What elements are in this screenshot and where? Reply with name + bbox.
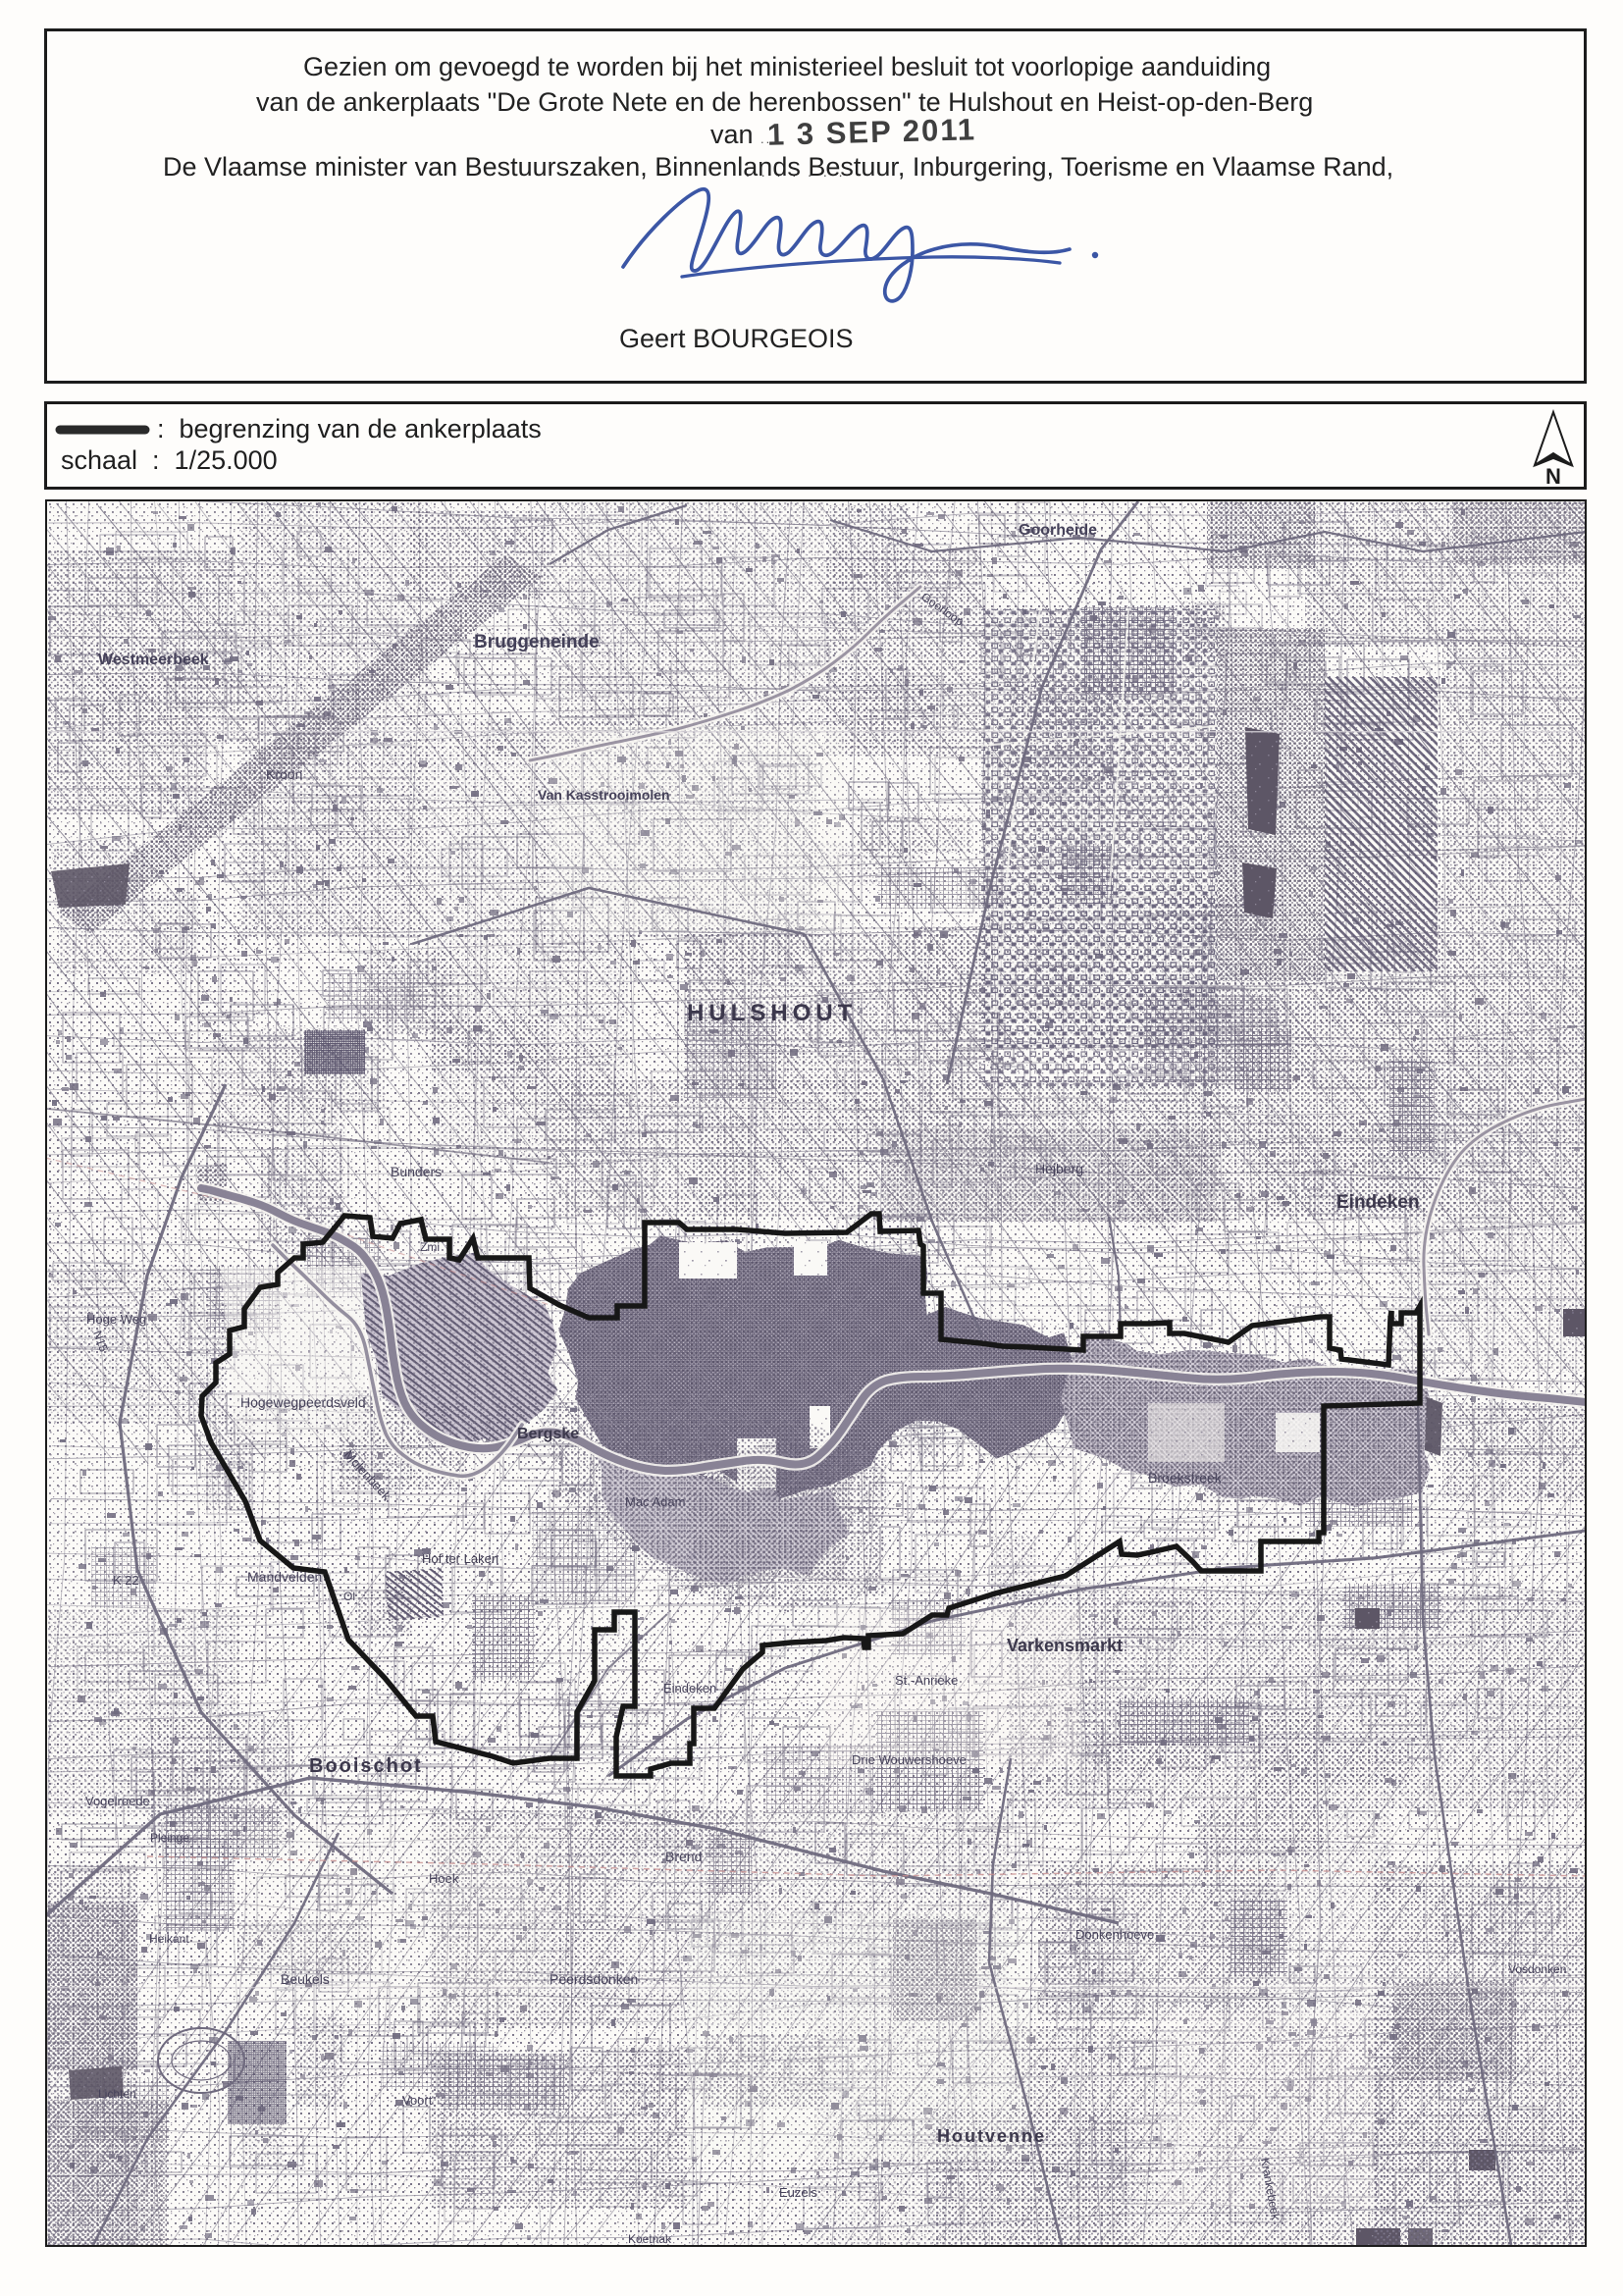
svg-text:Heikant: Heikant — [149, 1932, 189, 1946]
svg-text:Eindeken: Eindeken — [663, 1681, 716, 1696]
svg-text:K 22: K 22 — [113, 1573, 139, 1588]
svg-text:Hoge Weg: Hoge Weg — [86, 1312, 146, 1327]
svg-text:Goorheide: Goorheide — [1019, 522, 1097, 539]
svg-text:Hogewegpeerdsveld: Hogewegpeerdsveld — [240, 1394, 366, 1410]
svg-text:Beukels: Beukels — [281, 1971, 330, 1987]
svg-text:Kroon: Kroon — [266, 766, 302, 782]
svg-text:Voort: Voort — [402, 2093, 433, 2108]
svg-text:Euzels: Euzels — [779, 2185, 818, 2200]
svg-text:Mandvelden: Mandvelden — [247, 1569, 322, 1585]
svg-text:Drie Wouwershoeve: Drie Wouwershoeve — [852, 1752, 967, 1767]
svg-text:St.-Anrieke: St.-Anrieke — [895, 1673, 958, 1688]
svg-text:Varkensmarkt: Varkensmarkt — [1007, 1636, 1123, 1655]
svg-text:Broekstreek: Broekstreek — [1148, 1470, 1223, 1486]
svg-text:Lichten: Lichten — [98, 2087, 136, 2101]
svg-text:Bruggeneinde: Bruggeneinde — [474, 632, 600, 652]
svg-text:Brend: Brend — [665, 1849, 702, 1864]
svg-text:Booischot: Booischot — [309, 1755, 423, 1777]
svg-text:Peerdsdonken: Peerdsdonken — [550, 1971, 638, 1987]
svg-text:Hoek: Hoek — [429, 1871, 459, 1886]
svg-text:Hejberg: Hejberg — [1035, 1161, 1083, 1176]
svg-text:Vosdonken: Vosdonken — [1508, 1962, 1566, 1976]
svg-text:Ol: Ol — [343, 1590, 355, 1603]
svg-text:N: N — [1545, 464, 1561, 486]
svg-text:Hof ter Laken: Hof ter Laken — [422, 1551, 498, 1566]
svg-text:HULSHOUT: HULSHOUT — [687, 1000, 857, 1026]
svg-text:Pleinge: Pleinge — [150, 1831, 189, 1845]
svg-text:Bergske: Bergske — [517, 1426, 579, 1442]
svg-text:Van Kasstrooimolen: Van Kasstrooimolen — [538, 787, 670, 803]
svg-text:Westmeerbeek: Westmeerbeek — [98, 652, 209, 668]
svg-text:Houtvenne: Houtvenne — [937, 2126, 1046, 2146]
svg-text:Donkenhoeve: Donkenhoeve — [1075, 1927, 1154, 1942]
svg-text:Koetnak: Koetnak — [628, 2232, 672, 2245]
svg-text:Eindeken: Eindeken — [1336, 1192, 1419, 1213]
svg-text:Bunders: Bunders — [391, 1164, 442, 1179]
svg-text:Mac Adam: Mac Adam — [625, 1494, 685, 1509]
svg-text:Vogelroede: Vogelroede — [85, 1794, 150, 1808]
svg-text:Zmi: Zmi — [420, 1240, 440, 1254]
